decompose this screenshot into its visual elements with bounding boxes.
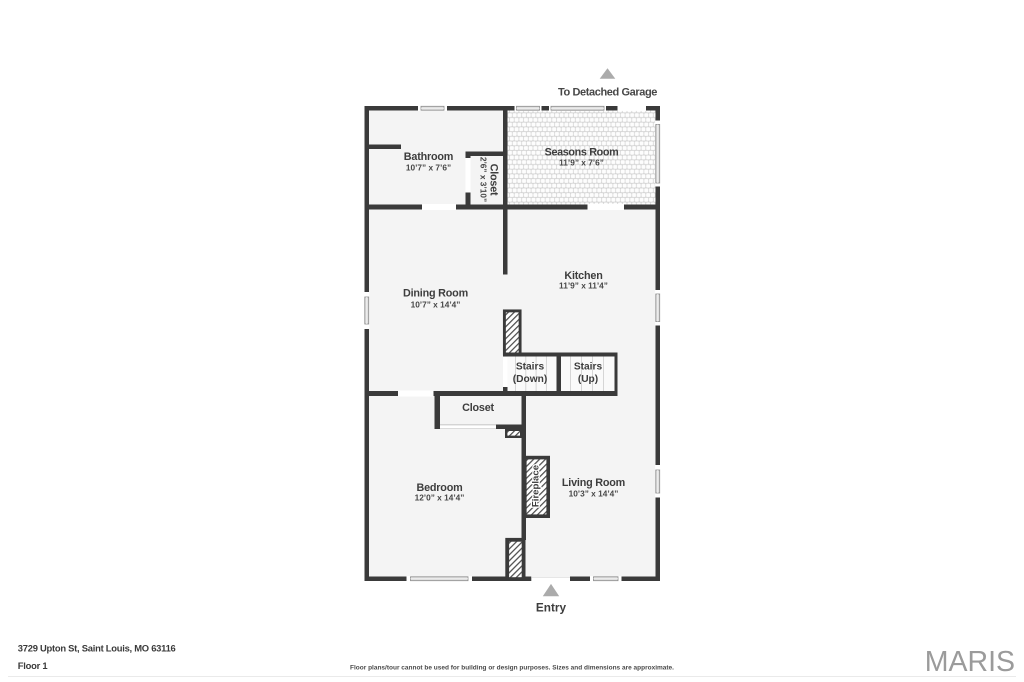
svg-text:Dining Room: Dining Room	[403, 288, 468, 300]
svg-text:Floor plans/tour cannot be use: Floor plans/tour cannot be used for buil…	[350, 665, 674, 672]
svg-text:10’7” x 7’6”: 10’7” x 7’6”	[406, 163, 451, 173]
svg-text:11’9” x 11’4”: 11’9” x 11’4”	[559, 281, 608, 291]
svg-text:11’9” x 7’6”: 11’9” x 7’6”	[559, 158, 604, 168]
svg-text:Fireplace: Fireplace	[531, 465, 542, 507]
svg-text:Living Room: Living Room	[562, 477, 625, 489]
svg-text:Bathroom: Bathroom	[404, 151, 453, 163]
svg-text:10’7” x 14’4”: 10’7” x 14’4”	[411, 299, 461, 309]
svg-text:MARIS: MARIS	[925, 646, 1015, 678]
svg-text:10’3” x 14’4”: 10’3” x 14’4”	[569, 489, 619, 499]
svg-text:(Up): (Up)	[578, 374, 598, 385]
svg-text:(Down): (Down)	[513, 374, 548, 385]
svg-text:To Detached Garage: To Detached Garage	[558, 86, 657, 98]
svg-text:12’0” x 14’4”: 12’0” x 14’4”	[415, 492, 465, 502]
svg-text:Stairs: Stairs	[516, 361, 545, 372]
svg-text:Floor 1: Floor 1	[18, 660, 48, 671]
svg-text:Closet: Closet	[462, 402, 494, 414]
svg-text:2’6” x 3’10”: 2’6” x 3’10”	[479, 157, 489, 202]
svg-text:Entry: Entry	[536, 601, 567, 615]
svg-text:3729 Upton St, Saint Louis, MO: 3729 Upton St, Saint Louis, MO 63116	[18, 642, 176, 653]
svg-text:Seasons Room: Seasons Room	[545, 146, 619, 158]
svg-text:Stairs: Stairs	[574, 361, 603, 372]
